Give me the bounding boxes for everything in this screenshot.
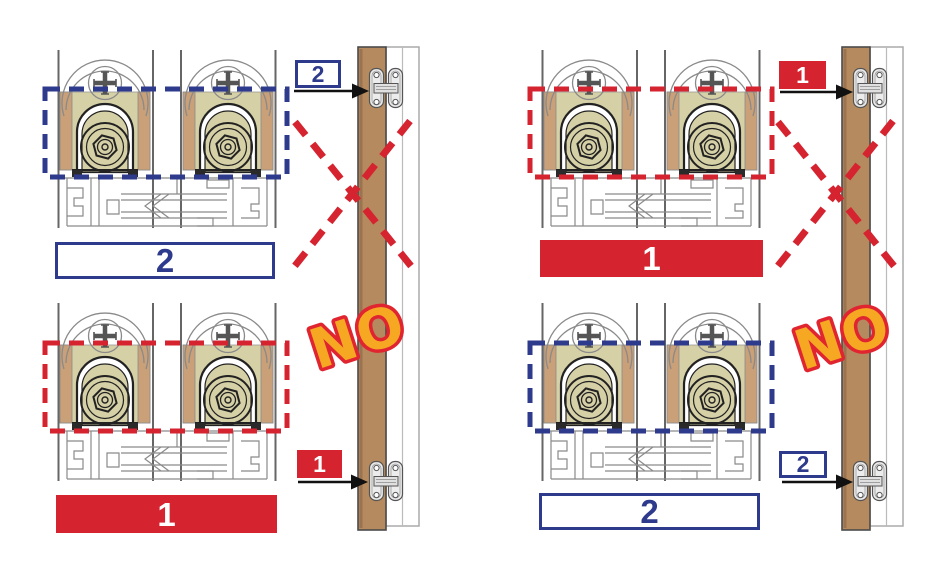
instruction-diagram: NO NO 2 1 1 2 2 1 1 2 (0, 0, 947, 581)
step-label-left-bottom: 1 (56, 495, 277, 533)
hinge-callout-left-top: 2 (295, 60, 341, 88)
roller-assembly-left-bottom (59, 303, 276, 481)
hinge-callout-left-bottom: 1 (297, 450, 342, 478)
hinge-callout-right-top: 1 (779, 61, 826, 89)
hinge-callout-right-bottom: 2 (779, 451, 827, 478)
roller-assembly-left-top (59, 50, 276, 228)
step-label-right-bottom: 2 (539, 493, 760, 530)
step-label-left-top: 2 (55, 242, 275, 279)
wood-strip-right (842, 47, 903, 530)
roller-assembly-right-top (543, 50, 760, 228)
roller-assembly-right-bottom (543, 303, 760, 481)
wood-strip-left (358, 47, 419, 530)
step-label-right-top: 1 (540, 240, 763, 277)
